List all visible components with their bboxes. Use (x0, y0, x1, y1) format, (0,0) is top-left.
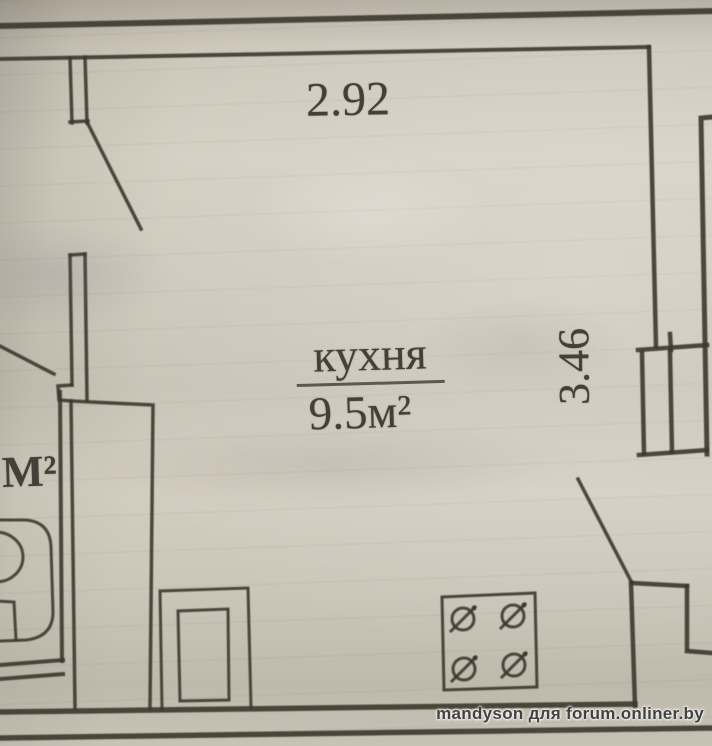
bathroom (0, 346, 63, 679)
stove-icon (442, 593, 537, 690)
room-area-label: 9.5м² (285, 384, 434, 442)
adjacent-room-area-label: М² (1, 445, 57, 498)
watermark-text: mandyson для forum.onliner.by (436, 704, 704, 724)
door-swing-bottom-right (578, 479, 632, 583)
counter-fixture (71, 401, 153, 708)
door-top-left (70, 57, 141, 229)
door-swing-top-left (88, 124, 141, 229)
vent-shaft (638, 334, 707, 455)
wall-right (649, 47, 712, 454)
toilet-icon (0, 520, 53, 642)
dimension-top-label: 2.92 (280, 71, 417, 128)
wall-left-mid (58, 254, 87, 401)
wall-top (0, 11, 712, 59)
dimension-right-label: 3.46 (548, 309, 600, 423)
door-bottom-right (578, 479, 712, 706)
sink-icon (160, 588, 251, 709)
door-swing-bathroom (0, 346, 54, 374)
room-name-label: кухня (295, 326, 445, 387)
floorplan-photo: 2.92 кухня 9.5м² 3.46 М² mandyson для fo… (0, 0, 712, 746)
